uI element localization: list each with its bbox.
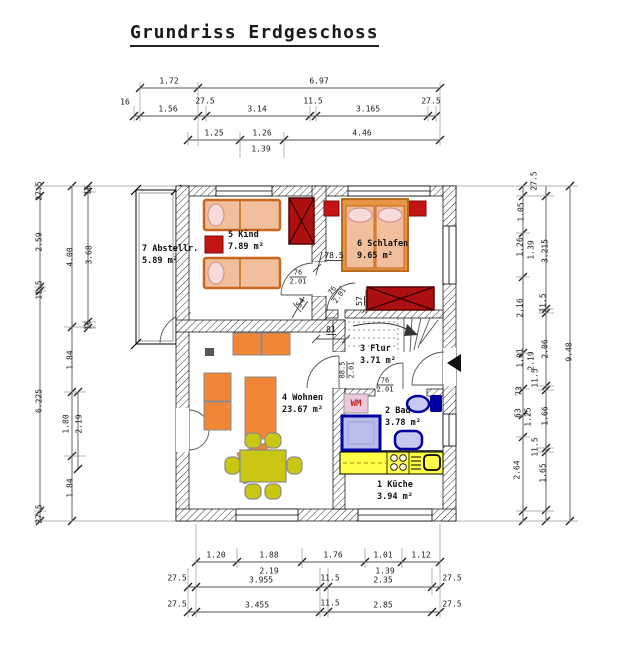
stove-burner — [400, 464, 407, 471]
sofa-segment — [204, 402, 231, 430]
dimension-label: 1.39 — [527, 240, 536, 259]
dimension-label: 1.26 — [252, 129, 271, 138]
dimension-label: 3.955 — [249, 576, 273, 585]
room-label: 7 Abstellr.5.89 m² — [142, 243, 198, 267]
dimension-label: 2.06 — [541, 339, 550, 358]
dimension-label: 2.35 — [373, 576, 392, 585]
pillow — [378, 208, 402, 222]
nightstand — [324, 201, 339, 216]
dining-table — [240, 450, 286, 482]
dimension-lines — [34, 82, 578, 618]
dimension-label: 27.5 — [167, 600, 186, 609]
dimension-label: 11.5 — [35, 280, 44, 299]
sofa-segment — [204, 373, 231, 401]
stove-burner — [400, 455, 407, 462]
interior-dimension-label: 78.5 — [324, 251, 343, 261]
dimension-label: 4.00 — [66, 247, 75, 266]
dimension-label: 1.72 — [159, 77, 178, 86]
kitchen-counter — [340, 452, 443, 474]
dimension-label: 1.25 — [204, 129, 223, 138]
dimension-label: 27.5 — [35, 504, 44, 523]
dimension-label: 27.5 — [530, 171, 539, 190]
chair — [245, 484, 261, 499]
pillow — [208, 204, 224, 226]
dimension-label: 9.48 — [565, 342, 574, 361]
sofa-segment — [233, 333, 261, 355]
dimension-label: 1.39 — [251, 145, 270, 154]
dimension-label: 1.01 — [373, 551, 392, 560]
dimension-label: 1.65 — [539, 463, 548, 482]
dimension-label: 1.84 — [66, 478, 75, 497]
room-label: 1 Küche3.94 m² — [377, 479, 413, 503]
dimension-label: 16 — [84, 320, 93, 330]
dimension-label: 27.5 — [167, 574, 186, 583]
dimension-label: 27.5 — [35, 181, 44, 200]
room-label: 3 Flur3.71 m² — [360, 343, 396, 367]
dimension-label: 3.68 — [85, 245, 94, 264]
dimension-label: 16 — [120, 98, 130, 107]
dimension-label: 27.5 — [421, 97, 440, 106]
appliance-label: WM — [351, 399, 362, 409]
chair — [265, 484, 281, 499]
dimension-label: 1.05 — [517, 202, 526, 221]
dimension-label: 63 — [514, 408, 523, 418]
door-dimension-label: 762.01 — [290, 269, 307, 286]
dimension-label: 2.19 — [259, 567, 278, 576]
dimension-label: 3.165 — [356, 105, 380, 114]
terrace-door-opening — [176, 408, 189, 452]
dimension-label: 1.80 — [62, 414, 71, 433]
dimension-label: 11.5 — [320, 574, 339, 583]
dimension-label: 11.5 — [531, 368, 540, 387]
stair-arrow-head — [404, 324, 418, 336]
dimension-label: 1.66 — [541, 406, 550, 425]
dimension-label: 1.20 — [206, 551, 225, 560]
room-label: 6 Schlafen9.65 m² — [357, 238, 408, 262]
room-label: 5 Kind7.89 m² — [228, 229, 264, 253]
dimension-label: 1.25 — [524, 407, 533, 426]
chair — [287, 457, 302, 474]
door-dimension-label: 762.01 — [377, 377, 394, 394]
dimension-label: 6.225 — [35, 389, 44, 413]
dimension-label: 27.5 — [195, 97, 214, 106]
interior-dimension-label: 57 — [355, 296, 365, 306]
chair — [245, 433, 261, 448]
dimension-label: 1.56 — [158, 105, 177, 114]
dimension-label: 11.5 — [531, 437, 540, 456]
dimension-label: 2.64 — [513, 460, 522, 479]
interior-dimension-label: 81 — [326, 325, 336, 335]
stove-burner — [391, 455, 398, 462]
pillow — [208, 262, 224, 284]
dimension-label: 2.59 — [35, 232, 44, 251]
dimension-label: 4.46 — [352, 129, 371, 138]
sink — [395, 431, 422, 449]
dimension-label: 27.5 — [442, 600, 461, 609]
terrace-door-arc-2 — [189, 430, 209, 450]
toilet-tank — [430, 395, 442, 412]
tv-unit — [205, 348, 214, 356]
stair-walk-line — [353, 323, 410, 331]
dimension-label: 2.85 — [373, 601, 392, 610]
dimension-label: 1.39 — [375, 567, 394, 576]
room-label: 4 Wohnen23.67 m² — [282, 392, 323, 416]
door-dimension-label: 88.52.01 — [339, 362, 356, 379]
dimension-label: 6.97 — [309, 77, 328, 86]
dimension-label: 1.84 — [66, 350, 75, 369]
floorplan-page: Grundriss Erdgeschoss — [0, 0, 640, 665]
dimension-label: 1.76 — [323, 551, 342, 560]
dimension-label: 16 — [84, 185, 93, 195]
dimension-label: 2.16 — [516, 298, 525, 317]
dimension-label: 27.5 — [442, 574, 461, 583]
dimension-label: 3.215 — [541, 239, 550, 263]
nightstand — [205, 236, 223, 253]
dimension-label: 1.01 — [516, 348, 525, 367]
dimension-label: 3.455 — [245, 601, 269, 610]
entrance-door-arc — [412, 352, 444, 385]
dimension-label: 1.26 — [516, 237, 525, 256]
chair — [225, 457, 240, 474]
dimension-label: 73 — [515, 386, 524, 396]
sofa-segment — [262, 333, 290, 355]
couch-table — [245, 377, 276, 439]
stove-burner — [391, 464, 398, 471]
dimension-label: 1.12 — [411, 551, 430, 560]
chair — [265, 433, 281, 448]
pillow — [348, 208, 372, 222]
furniture-dining — [225, 433, 302, 499]
dimension-label: 2.19 — [75, 414, 84, 433]
dimension-label: 11.5 — [539, 293, 548, 312]
dimension-label: 11.5 — [303, 97, 322, 106]
nightstand — [409, 201, 426, 216]
dimension-label: 1.88 — [259, 551, 278, 560]
room-label: 2 Bad3.78 m² — [385, 405, 421, 429]
dimension-label: 3.14 — [247, 105, 266, 114]
dimension-label: 11.5 — [320, 599, 339, 608]
